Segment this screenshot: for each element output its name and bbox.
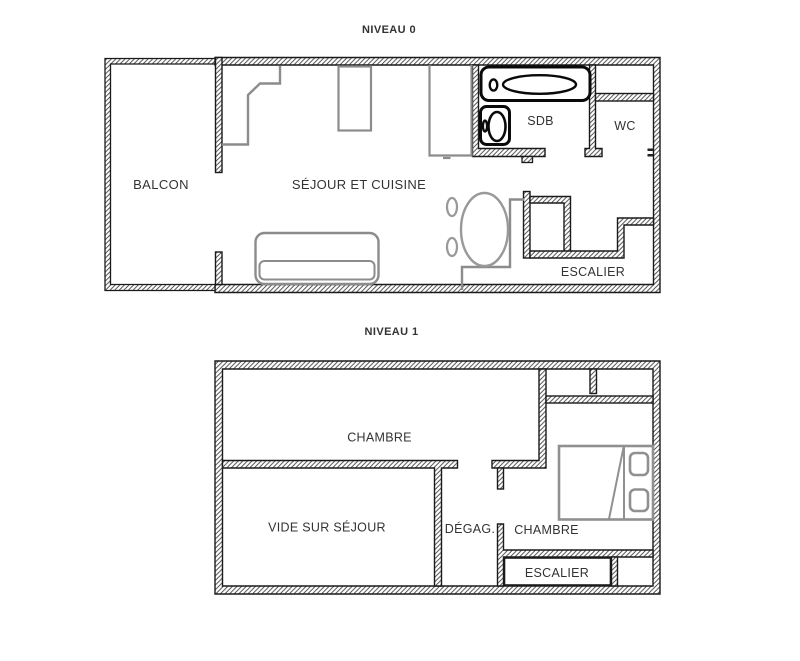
svg-text:NIVEAU 0: NIVEAU 0 xyxy=(362,24,416,36)
svg-text:CHAMBRE: CHAMBRE xyxy=(514,523,579,537)
svg-text:WC: WC xyxy=(614,119,635,133)
svg-text:ESCALIER: ESCALIER xyxy=(561,265,625,279)
svg-text:DÉGAG.: DÉGAG. xyxy=(445,521,495,536)
svg-text:BALCON: BALCON xyxy=(133,177,189,192)
svg-text:SDB: SDB xyxy=(527,114,554,128)
svg-text:SÉJOUR ET CUISINE: SÉJOUR ET CUISINE xyxy=(292,177,426,192)
svg-text:VIDE SUR SÉJOUR: VIDE SUR SÉJOUR xyxy=(268,520,386,535)
svg-text:NIVEAU 1: NIVEAU 1 xyxy=(365,326,419,338)
svg-text:ESCALIER: ESCALIER xyxy=(525,566,589,580)
svg-text:CHAMBRE: CHAMBRE xyxy=(347,431,412,445)
